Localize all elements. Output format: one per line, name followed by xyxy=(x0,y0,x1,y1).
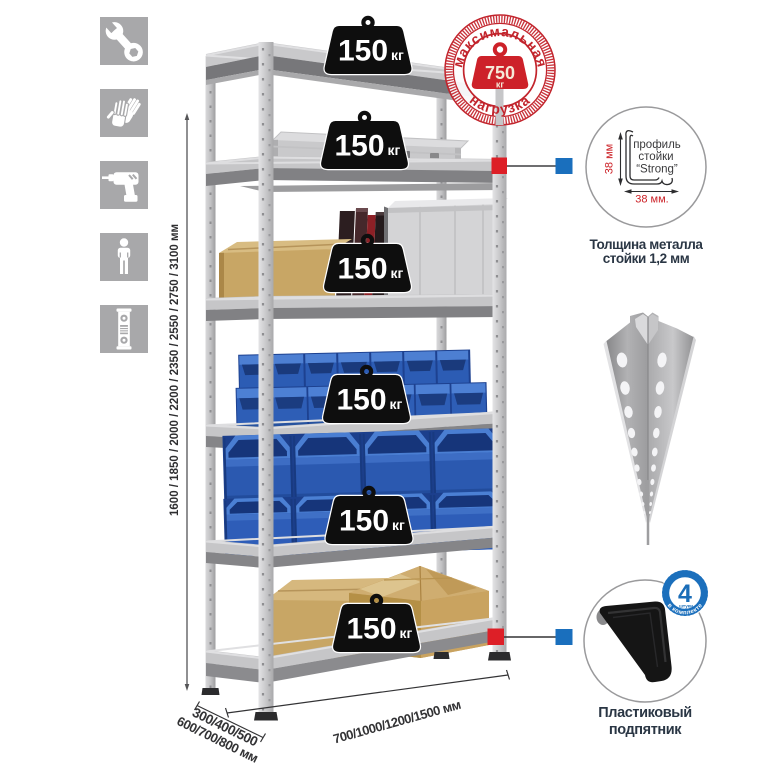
svg-text:“Strong”: “Strong” xyxy=(636,164,678,176)
svg-text:штуки: штуки xyxy=(679,604,693,609)
svg-text:подпятник: подпятник xyxy=(609,722,682,738)
svg-text:профиль: профиль xyxy=(633,139,681,151)
svg-text:стойки: стойки xyxy=(638,151,673,163)
svg-text:1600 / 1850 / 2000 / 2200 / 23: 1600 / 1850 / 2000 / 2200 / 2350 / 2550 … xyxy=(169,224,181,516)
svg-text:38 мм: 38 мм xyxy=(604,144,616,174)
svg-text:Пластиковый: Пластиковый xyxy=(598,705,692,721)
svg-text:кг: кг xyxy=(496,80,505,90)
svg-text:Толщина металла: Толщина металла xyxy=(589,237,703,252)
svg-text:38 мм.: 38 мм. xyxy=(635,194,668,206)
svg-text:стойки 1,2 мм: стойки 1,2 мм xyxy=(603,251,690,266)
